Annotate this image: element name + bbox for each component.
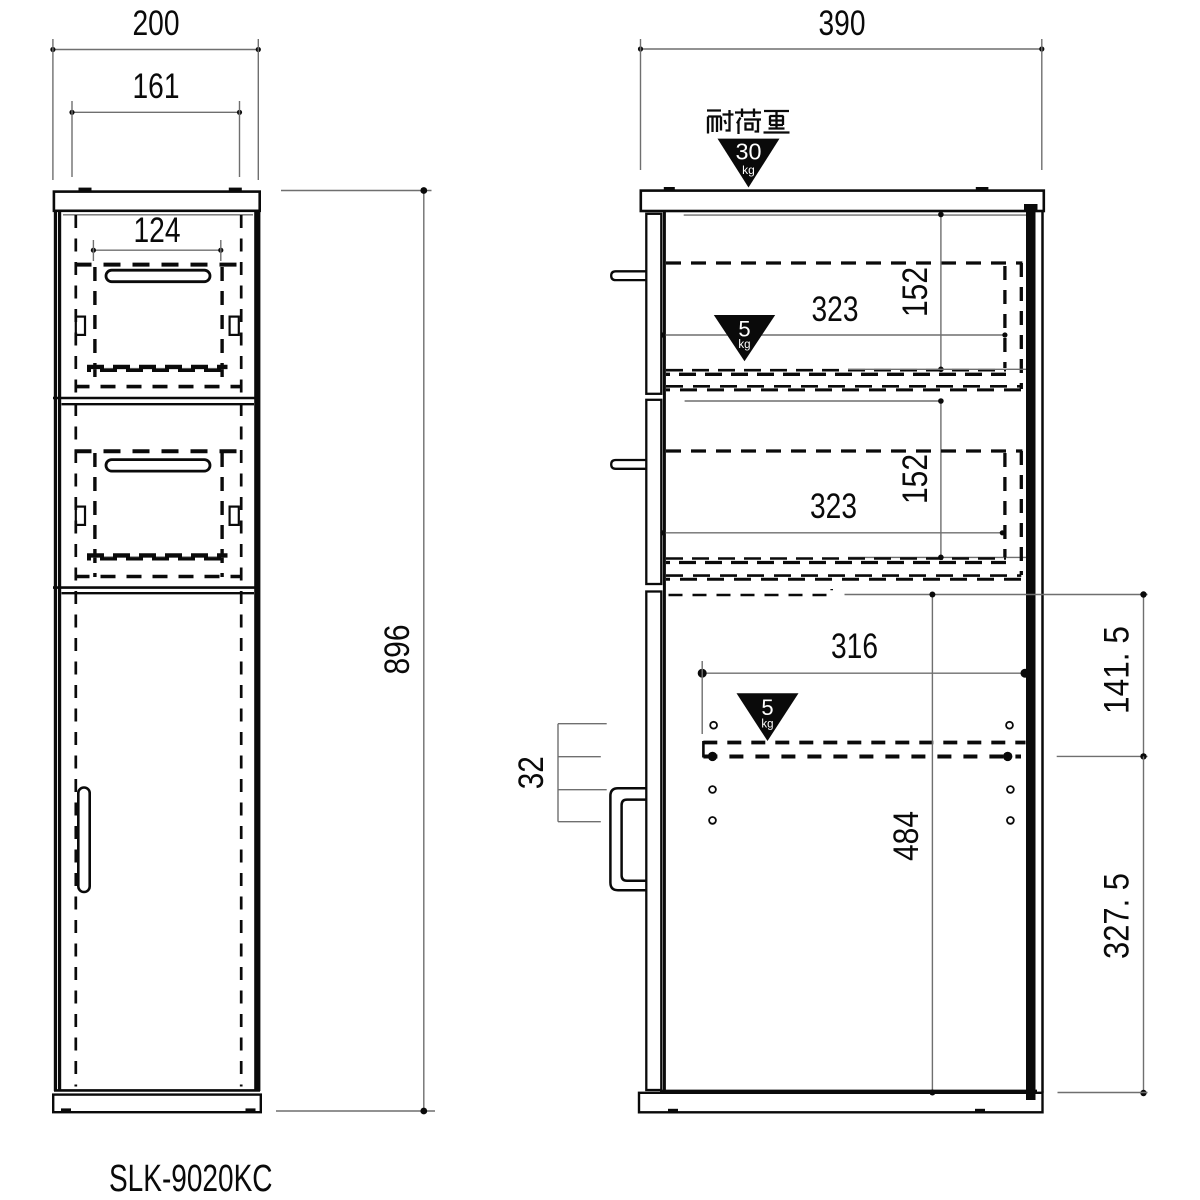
svg-text:390: 390 [819,4,866,43]
svg-text:323: 323 [812,290,859,329]
svg-text:200: 200 [133,4,180,43]
svg-text:kg: kg [738,339,750,351]
svg-text:323: 323 [810,487,857,526]
svg-text:SLK-9020KC: SLK-9020KC [109,1158,273,1200]
svg-text:327. 5: 327. 5 [1098,873,1137,959]
svg-text:kg: kg [761,719,773,731]
svg-text:152: 152 [896,454,935,504]
svg-text:896: 896 [378,625,417,675]
svg-text:152: 152 [896,267,935,317]
svg-text:kg: kg [742,163,755,177]
svg-text:316: 316 [831,627,878,666]
svg-text:161: 161 [133,67,180,106]
svg-text:484: 484 [887,811,926,861]
svg-text:30: 30 [736,139,762,165]
svg-text:124: 124 [134,211,181,250]
svg-text:5: 5 [738,317,750,342]
svg-text:141. 5: 141. 5 [1098,626,1137,714]
svg-text:5: 5 [761,695,773,720]
svg-text:32: 32 [512,756,551,789]
